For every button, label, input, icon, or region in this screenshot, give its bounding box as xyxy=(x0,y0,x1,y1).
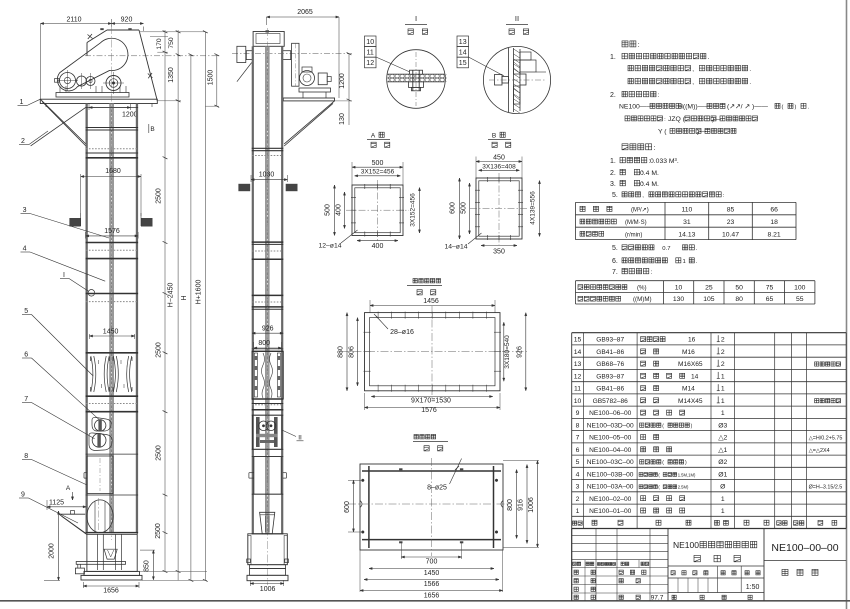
svg-text:): ) xyxy=(795,105,797,111)
svg-text:A: A xyxy=(371,133,376,140)
svg-text:926: 926 xyxy=(262,326,274,333)
svg-text:1:50: 1:50 xyxy=(746,584,760,591)
svg-text:I: I xyxy=(415,14,417,23)
svg-text:1450: 1450 xyxy=(424,570,440,577)
svg-text:M14: M14 xyxy=(682,386,695,393)
svg-text:2500: 2500 xyxy=(156,342,163,358)
svg-text:5: 5 xyxy=(576,459,580,466)
svg-text:NE100–03B–00: NE100–03B–00 xyxy=(587,471,634,478)
svg-text:3.: 3. xyxy=(610,181,616,188)
svg-text:1: 1 xyxy=(683,259,686,265)
svg-text:700: 700 xyxy=(426,559,438,566)
svg-text:5: 5 xyxy=(24,308,28,315)
svg-text:10: 10 xyxy=(366,39,374,46)
svg-text:50: 50 xyxy=(735,284,743,291)
svg-text:31: 31 xyxy=(683,219,691,226)
svg-text:0.4 M.: 0.4 M. xyxy=(640,181,659,188)
svg-text:2500: 2500 xyxy=(155,523,162,539)
svg-text:NE100–04–00: NE100–04–00 xyxy=(589,447,631,454)
svg-text:1500: 1500 xyxy=(207,70,214,86)
svg-text::: : xyxy=(638,42,640,49)
svg-text:H−2450: H−2450 xyxy=(168,283,175,308)
svg-text:1680: 1680 xyxy=(105,168,121,175)
svg-text:25: 25 xyxy=(705,284,713,291)
svg-text:14: 14 xyxy=(574,349,582,356)
svg-text:3X180=540: 3X180=540 xyxy=(504,335,511,369)
svg-text:8: 8 xyxy=(576,422,580,429)
svg-text:1450: 1450 xyxy=(103,329,119,336)
svg-text:2.: 2. xyxy=(610,170,616,177)
svg-text:2500: 2500 xyxy=(156,445,163,461)
svg-text:920: 920 xyxy=(121,17,133,24)
svg-text:JZQ (: JZQ ( xyxy=(668,116,686,123)
svg-text:14.13: 14.13 xyxy=(678,232,695,239)
svg-text:H+1600: H+1600 xyxy=(196,280,203,305)
svg-text:65: 65 xyxy=(766,296,774,303)
svg-text:NE100–00–00: NE100–00–00 xyxy=(771,542,838,554)
svg-text:100: 100 xyxy=(794,284,806,291)
svg-text:Ø3: Ø3 xyxy=(718,422,727,429)
svg-text::: : xyxy=(658,92,660,99)
svg-text:3X136=408: 3X136=408 xyxy=(482,163,516,170)
svg-text:600: 600 xyxy=(344,501,351,513)
svg-text:2065: 2065 xyxy=(297,9,313,16)
svg-text:1.: 1. xyxy=(610,54,616,61)
svg-text:M16: M16 xyxy=(682,349,695,356)
svg-text:170: 170 xyxy=(156,38,163,50)
svg-text:800: 800 xyxy=(507,499,514,511)
svg-text:1: 1 xyxy=(721,508,725,515)
svg-text:1125: 1125 xyxy=(49,500,64,507)
svg-text:8: 8 xyxy=(24,453,28,460)
svg-text:(↗↗/ ↗ )——: (↗↗/ ↗ )—— xyxy=(727,104,768,111)
svg-text:A: A xyxy=(66,485,71,492)
svg-text:.: . xyxy=(708,54,710,61)
svg-text:75: 75 xyxy=(766,284,774,291)
svg-text:10.47: 10.47 xyxy=(722,232,739,239)
svg-text:Ø: Ø xyxy=(720,484,726,491)
svg-text:5.: 5. xyxy=(612,245,618,252)
svg-text:△1: △1 xyxy=(718,447,727,454)
svg-text:2: 2 xyxy=(21,138,25,145)
svg-text:1576: 1576 xyxy=(104,228,120,235)
svg-text:2110: 2110 xyxy=(66,17,81,24)
svg-text:Ø2: Ø2 xyxy=(718,459,727,466)
svg-text:500: 500 xyxy=(461,202,468,214)
svg-text:1350: 1350 xyxy=(168,67,175,83)
svg-text:130: 130 xyxy=(673,296,685,303)
svg-text:M16X65: M16X65 xyxy=(678,361,703,368)
svg-text:18: 18 xyxy=(770,219,778,226)
svg-text:2500: 2500 xyxy=(156,188,163,204)
svg-text:2: 2 xyxy=(721,349,725,356)
svg-text:11: 11 xyxy=(367,50,374,57)
svg-text:66: 66 xyxy=(770,207,778,214)
svg-text:1576: 1576 xyxy=(421,407,437,414)
svg-text:I: I xyxy=(63,272,65,279)
svg-text:,: , xyxy=(692,79,694,86)
svg-text:28–ø16: 28–ø16 xyxy=(390,329,414,336)
svg-text:500: 500 xyxy=(325,204,332,216)
svg-text:1: 1 xyxy=(721,496,725,503)
svg-text:926: 926 xyxy=(517,346,524,358)
svg-text:(M³/↗): (M³/↗) xyxy=(631,208,649,214)
svg-text:3X152=456: 3X152=456 xyxy=(361,169,395,176)
svg-text:2: 2 xyxy=(721,337,725,344)
svg-text:5.: 5. xyxy=(612,192,618,199)
svg-text:97.7: 97.7 xyxy=(651,595,664,602)
svg-text:1030: 1030 xyxy=(259,172,275,179)
svg-text:13: 13 xyxy=(574,361,582,368)
svg-text:6: 6 xyxy=(576,447,580,454)
svg-text:NE100–06–00: NE100–06–00 xyxy=(589,410,631,417)
svg-text:1.: 1. xyxy=(610,158,616,165)
svg-text:Ø1: Ø1 xyxy=(718,471,727,478)
svg-text:500: 500 xyxy=(372,160,384,167)
svg-text:8.21: 8.21 xyxy=(767,232,780,239)
svg-text:2: 2 xyxy=(576,496,580,503)
svg-text:6: 6 xyxy=(24,352,28,359)
svg-text:(: ( xyxy=(782,105,784,111)
svg-text:NE100–05–00: NE100–05–00 xyxy=(589,435,631,442)
svg-text::: : xyxy=(651,269,653,276)
svg-text:880: 880 xyxy=(338,346,345,358)
svg-text:4: 4 xyxy=(23,246,27,253)
svg-text:1.5M,1M): 1.5M,1M) xyxy=(678,472,696,477)
svg-text:1656: 1656 xyxy=(424,593,440,600)
svg-text:350: 350 xyxy=(493,248,505,255)
svg-text:105: 105 xyxy=(703,296,715,303)
svg-text:15: 15 xyxy=(574,337,582,344)
svg-text:1: 1 xyxy=(20,99,24,106)
svg-text:II: II xyxy=(298,435,302,442)
svg-text:1200: 1200 xyxy=(339,73,346,89)
svg-text:13: 13 xyxy=(459,39,467,46)
svg-text:16: 16 xyxy=(688,337,696,344)
svg-text:3: 3 xyxy=(23,207,27,214)
svg-text:GB41–86: GB41–86 xyxy=(596,349,624,356)
svg-text:1200: 1200 xyxy=(122,112,138,119)
svg-text:400: 400 xyxy=(372,243,384,250)
svg-text:1: 1 xyxy=(721,386,725,393)
svg-text:1: 1 xyxy=(721,410,725,417)
svg-text:NE100–03C–00: NE100–03C–00 xyxy=(587,459,634,466)
svg-text:7: 7 xyxy=(576,435,580,442)
svg-text:NE100–02–00: NE100–02–00 xyxy=(589,496,631,503)
svg-text:85: 85 xyxy=(727,207,735,214)
svg-text:14: 14 xyxy=(459,50,467,57)
svg-text:400: 400 xyxy=(336,204,343,216)
svg-text:2.: 2. xyxy=(610,92,616,99)
svg-text:14–ø14: 14–ø14 xyxy=(444,244,467,251)
svg-text:10: 10 xyxy=(574,398,582,405)
svg-text:((M)M): ((M)M) xyxy=(633,296,652,303)
svg-text:0.7: 0.7 xyxy=(662,246,670,252)
svg-text:M14X45: M14X45 xyxy=(678,398,703,405)
svg-text:H((M))——: H((M))—— xyxy=(678,104,711,111)
svg-text:△2: △2 xyxy=(718,435,727,442)
svg-text:3X152=456: 3X152=456 xyxy=(410,193,417,227)
svg-text:1: 1 xyxy=(721,373,725,380)
svg-text:NE100–01–00: NE100–01–00 xyxy=(589,508,631,515)
svg-text:GB93–87: GB93–87 xyxy=(596,337,624,344)
svg-text:55: 55 xyxy=(796,296,804,303)
svg-text:(r/min): (r/min) xyxy=(625,232,642,238)
svg-text:14: 14 xyxy=(691,373,699,380)
svg-text:10: 10 xyxy=(675,284,683,291)
svg-text:12–ø14: 12–ø14 xyxy=(318,243,341,250)
svg-text:600: 600 xyxy=(450,202,457,214)
svg-text:15: 15 xyxy=(459,60,467,67)
svg-text:NE100–03A–00: NE100–03A–00 xyxy=(587,484,634,491)
svg-text:1456: 1456 xyxy=(423,298,439,305)
svg-text:9X170=1530: 9X170=1530 xyxy=(411,398,451,405)
svg-text:7.: 7. xyxy=(612,269,618,276)
svg-text:9: 9 xyxy=(21,492,25,499)
svg-text:GB68–76: GB68–76 xyxy=(596,361,624,368)
svg-text:1566: 1566 xyxy=(424,581,440,588)
svg-text:7: 7 xyxy=(24,396,28,403)
svg-text:GB5782–86: GB5782–86 xyxy=(593,398,629,405)
svg-text:,: , xyxy=(692,66,694,73)
svg-text:II: II xyxy=(515,14,519,23)
svg-text:110: 110 xyxy=(681,207,692,214)
svg-text:H: H xyxy=(181,295,188,300)
svg-text:4X139=556: 4X139=556 xyxy=(530,191,537,225)
svg-text:B: B xyxy=(150,126,154,133)
svg-text:850: 850 xyxy=(144,560,151,572)
svg-text:4: 4 xyxy=(576,471,580,478)
svg-text:8–ø25: 8–ø25 xyxy=(427,485,447,492)
svg-text:2.5M): 2.5M) xyxy=(678,485,689,490)
svg-text:(M/M·S): (M/M·S) xyxy=(625,220,647,226)
svg-text:130: 130 xyxy=(339,113,346,125)
svg-text::: : xyxy=(654,145,656,152)
svg-text:Y (: Y ( xyxy=(658,129,667,136)
svg-text:Ø=H–3.15/2.5: Ø=H–3.15/2.5 xyxy=(809,485,843,491)
svg-text:12: 12 xyxy=(366,60,374,67)
svg-text:(%): (%) xyxy=(637,285,647,292)
svg-text:6.: 6. xyxy=(612,258,618,265)
svg-text:B: B xyxy=(492,133,496,140)
svg-text:3: 3 xyxy=(576,484,580,491)
svg-text:1: 1 xyxy=(721,398,725,405)
svg-text:1656: 1656 xyxy=(103,588,119,595)
svg-text:0.033 M³.: 0.033 M³. xyxy=(650,158,679,165)
svg-text:806: 806 xyxy=(349,346,356,358)
svg-text:23: 23 xyxy=(727,219,735,226)
svg-text:2: 2 xyxy=(721,361,725,368)
svg-text:9: 9 xyxy=(576,410,580,417)
svg-text:450: 450 xyxy=(493,155,505,162)
svg-text:NE100–03D–00: NE100–03D–00 xyxy=(587,422,634,429)
svg-text:80: 80 xyxy=(735,296,743,303)
svg-text:.: . xyxy=(749,79,751,86)
svg-text:2000: 2000 xyxy=(49,543,56,559)
svg-text:△=△2X4: △=△2X4 xyxy=(809,448,830,454)
svg-text:NE100——: NE100—— xyxy=(619,104,654,111)
svg-text:1: 1 xyxy=(576,508,580,515)
svg-text:916: 916 xyxy=(518,499,525,511)
svg-text:0.4 M.: 0.4 M. xyxy=(640,170,659,177)
svg-text:.: . xyxy=(749,66,751,73)
svg-text:NE100: NE100 xyxy=(673,540,699,550)
svg-text:12: 12 xyxy=(574,373,582,380)
svg-text:GB41–86: GB41–86 xyxy=(596,386,624,393)
svg-text:1006: 1006 xyxy=(260,586,276,593)
svg-text:11: 11 xyxy=(574,386,581,393)
svg-text:GB93–87: GB93–87 xyxy=(596,373,624,380)
svg-text:1006: 1006 xyxy=(528,497,535,513)
svg-text:750: 750 xyxy=(168,37,175,49)
svg-text:800: 800 xyxy=(258,340,270,347)
svg-text:△=H/0.2+5.75: △=H/0.2+5.75 xyxy=(809,436,843,442)
